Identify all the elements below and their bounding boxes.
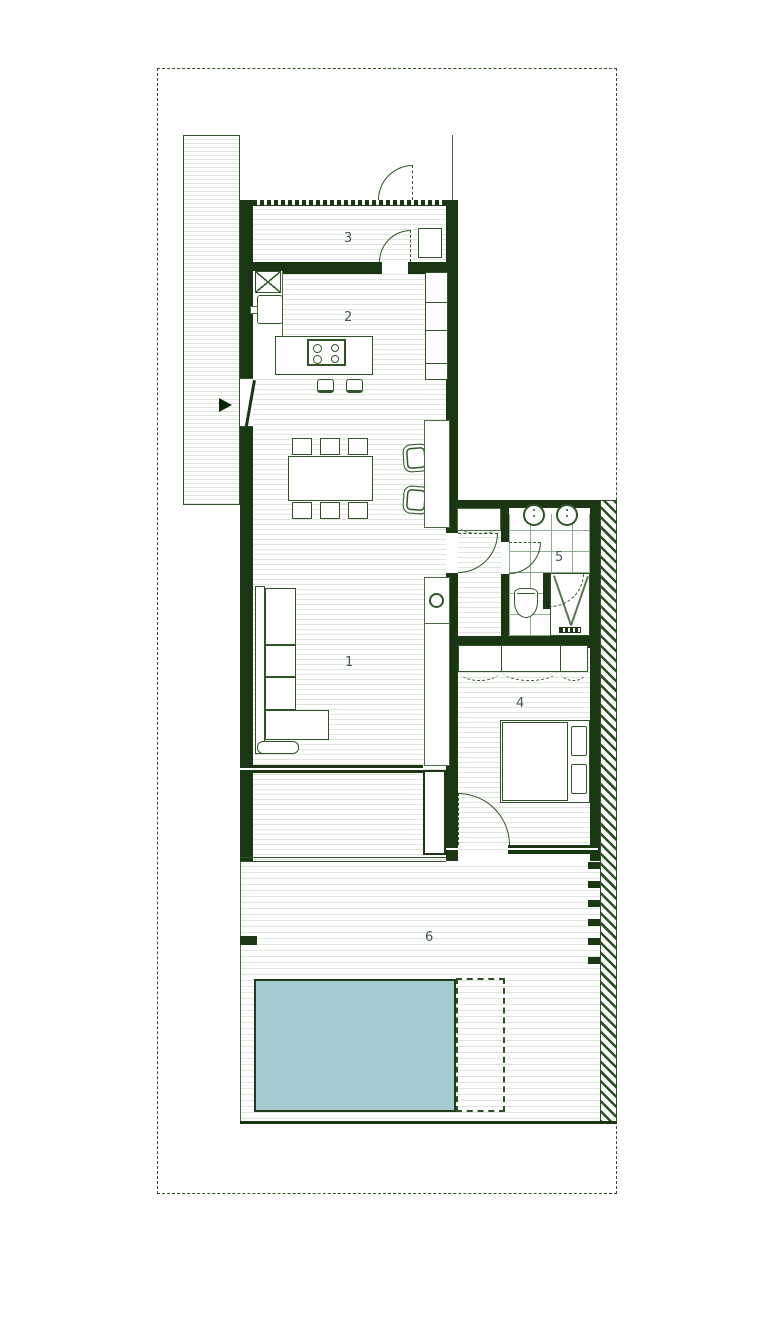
bed-mattress [502,722,568,801]
round-side-table [429,593,444,608]
neighbor-wall-hatch [600,500,617,1124]
hatch-step-6 [588,957,600,964]
bar-stool-2 [346,379,363,393]
driveway [183,135,240,505]
pool-deck-dashed [456,978,505,1112]
bathroom-sink-2 [556,504,578,526]
burner-icon [313,355,322,364]
wall-east-wing [590,500,600,861]
sofa-cushion-1 [265,588,296,645]
porch-column [423,770,446,855]
glass-wall-living-south [240,765,423,773]
room3-door-opening [382,262,408,274]
sideboard [424,420,450,528]
dining-chair [292,438,312,455]
terrace-south-edge [240,1121,617,1124]
hatch-step-5 [588,938,600,945]
room-label-kitchen: 2 [344,311,352,324]
bed-pillow-2 [571,764,587,794]
burner-icon [313,344,322,353]
fence-courtyard [253,200,446,206]
pantry-cabinet [255,271,281,293]
room-label-living: 1 [345,656,353,669]
dining-chair [292,502,312,519]
bar-stool-1 [317,379,334,393]
shower-partition [543,573,550,609]
dining-chair [348,438,368,455]
hatch-step-4 [588,919,600,926]
path-edge-line [452,135,453,201]
dining-table [288,456,373,501]
entrance-arrow-icon [219,398,232,412]
dining-chair [320,438,340,455]
dining-chair [320,502,340,519]
room-label-terrace: 6 [425,931,433,944]
pool [254,979,456,1112]
bed-pillow-1 [571,726,587,756]
dining-chair [348,502,368,519]
bedroom-door-leaf [458,793,459,845]
room-label-bedroom: 4 [516,697,524,710]
wall-west [240,200,253,861]
sofa-chaise [265,710,329,740]
burner-icon [331,344,339,352]
cooktop [307,339,346,366]
burner-icon [331,355,339,363]
sofa-cushion-3 [265,677,296,710]
bathroom-door-leaf [509,542,541,543]
hatch-step-1 [588,862,600,869]
sofa-back [255,586,265,754]
shower-drain [559,627,581,633]
entry-closet [418,228,442,258]
room3-door-leaf [410,230,411,262]
wardrobe [458,645,588,672]
kitchen-sink [257,295,283,324]
gate-leaf [412,165,413,200]
sofa-armrest [257,741,299,754]
bedroom-door-opening [458,845,508,854]
bathroom-sink-1 [523,504,545,526]
floor-plan-canvas: 1 2 3 4 5 6 [0,0,768,1344]
kitchen-tall-cabinets [425,272,448,380]
bath-door-opening [501,542,509,574]
kitchen-faucet [250,306,258,314]
hallway-door-opening [446,533,458,573]
wall-bath-west [501,508,509,642]
room-label-entry: 3 [344,232,352,245]
room-label-bath: 5 [555,551,563,564]
terrace-step-west [240,936,257,945]
sofa-cushion-2 [265,645,296,677]
hatch-step-2 [588,881,600,888]
hatch-step-3 [588,900,600,907]
porch-south-edge [240,857,446,862]
